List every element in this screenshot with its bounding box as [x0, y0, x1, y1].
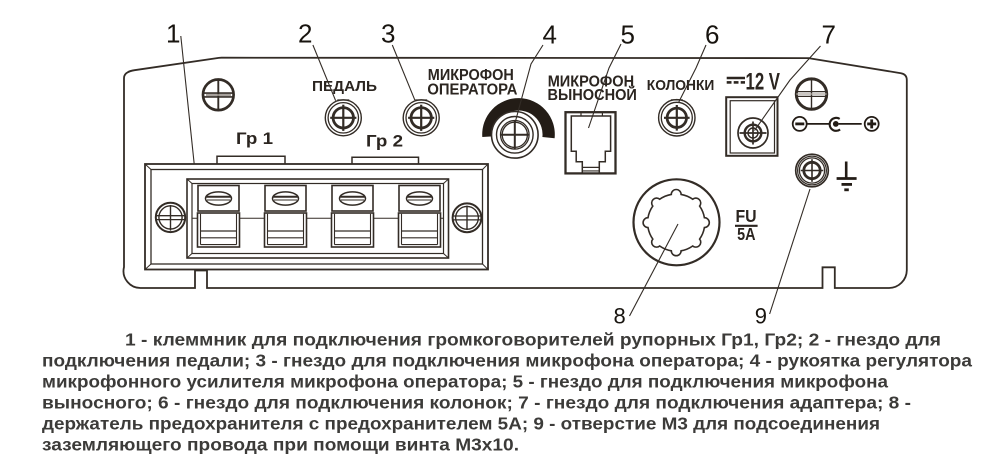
svg-text:8: 8 [614, 304, 626, 329]
svg-text:9: 9 [755, 304, 767, 329]
svg-text:Гр 1: Гр 1 [236, 129, 273, 148]
svg-text:6: 6 [705, 19, 719, 49]
svg-text:4: 4 [543, 19, 557, 49]
svg-text:1 - клеммник для подключения г: 1 - клеммник для подключения громкоговор… [125, 330, 941, 350]
svg-text:12 V: 12 V [746, 69, 781, 96]
svg-text:ОПЕРАТОРА: ОПЕРАТОРА [427, 82, 517, 99]
svg-text:подключения педали; 3 - гнездо: подключения педали; 3 - гнездо для подкл… [42, 351, 972, 371]
svg-text:держатель предохранителя с пре: держатель предохранителя с предохранител… [42, 414, 880, 434]
svg-text:2: 2 [298, 18, 312, 48]
svg-text:3: 3 [381, 18, 395, 48]
svg-text:5A: 5A [737, 224, 756, 244]
svg-text:5: 5 [621, 19, 635, 49]
svg-text:КОЛОНКИ: КОЛОНКИ [647, 77, 715, 94]
svg-text:ПЕДАЛЬ: ПЕДАЛЬ [312, 78, 377, 95]
svg-text:выносного; 6 - гнездо для подк: выносного; 6 - гнездо для подключения ко… [42, 393, 911, 413]
svg-text:заземляющего провода при помощ: заземляющего провода при помощи винта М3… [42, 435, 519, 455]
svg-text:7: 7 [822, 19, 836, 49]
svg-text:1: 1 [166, 18, 180, 48]
svg-text:ВЫНОСНОЙ: ВЫНОСНОЙ [548, 85, 637, 104]
svg-text:микрофонного усилителя микрофо: микрофонного усилителя микрофона операто… [42, 372, 888, 392]
svg-text:Гр 2: Гр 2 [366, 131, 403, 150]
